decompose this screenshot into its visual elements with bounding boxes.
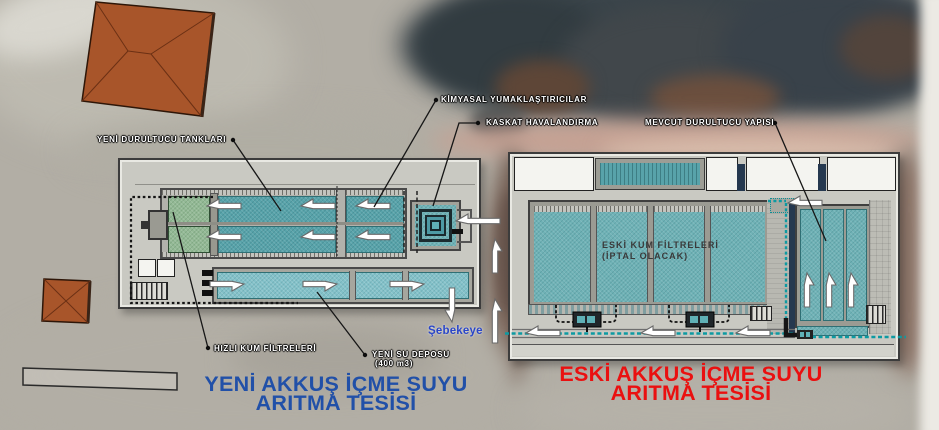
stairs [130,282,168,300]
clarifier-column [800,209,821,321]
title-old-plant: ESKİ AKKUŞ İÇME SUYU ARITMA TESİSİ [548,365,834,402]
room [746,157,820,191]
label-new-water-tank-line1: YENİ SU DEPOSU [372,350,450,359]
room-divider [737,164,745,191]
label-cascade-aeration: KASKAT HAVALANDIRMA [486,118,598,127]
new-water-storage-tank [212,267,474,304]
label-new-clarifier-tanks: YENİ DURULTUCU TANKLARI [97,135,226,144]
flocculation-tank-assembly [160,188,407,259]
inlet-bracket [457,209,472,243]
pool-label-old-sand-filters: ESKİ KUM FİLTRELERİ (İPTAL OLACAK) [602,240,719,262]
room-divider [818,164,826,191]
center-beam [164,222,403,225]
old-plant-footprint: ESKİ KUM FİLTRELERİ (İPTAL OLACAK) [508,152,900,361]
label-to-network: Şebekeye [428,325,483,337]
stairs [866,305,886,324]
existing-clarifier-columns [795,204,873,328]
room [827,157,896,191]
chemical-mixing-cell [346,196,404,223]
room [514,157,594,191]
label-chemical-flocculators: KİMYASAL YUMAKLAŞTIRICILAR [441,95,587,104]
bottom-corridor [512,344,894,356]
title-new-plant-line2: ARITMA TESİSİ [193,394,479,413]
rapid-sand-filter-cell [168,226,210,253]
stairs [750,306,772,321]
tank-divider [349,271,356,300]
label-new-water-tank: YENİ SU DEPOSU (400 m3) [372,350,450,368]
pool-label-line2: (İPTAL OLACAK) [602,251,688,261]
cascade-aerator [410,200,461,251]
pump-structure [148,210,168,240]
new-plant-footprint [118,158,481,309]
chemical-room [595,158,705,190]
label-new-water-tank-line2: (400 m3) [375,359,450,368]
flocculation-cell [218,226,336,253]
pump-stub [141,221,148,229]
clarifier-column [846,209,867,321]
site-plan-diagram: ESKİ KUM FİLTRELERİ (İPTAL OLACAK) [0,0,939,430]
clarifier-column [823,209,844,321]
yard-structure [138,259,156,277]
label-rapid-sand-filters: HIZLI KUM FİLTRELERİ [214,344,316,353]
clarifier-channel [797,326,868,336]
chemical-mixing-cell [346,226,404,253]
title-old-plant-line2: ARITMA TESİSİ [548,384,834,403]
old-sand-filter-pool: ESKİ KUM FİLTRELERİ (İPTAL OLACAK) [528,200,771,308]
room [706,157,738,191]
title-new-plant: YENİ AKKUŞ İÇME SUYU ARITMA TESİSİ [193,375,479,412]
launder-strip [162,190,405,195]
pool-label-line1: ESKİ KUM FİLTRELERİ [602,240,719,250]
label-existing-clarifier: MEVCUT DURULTUCU YAPISI [645,118,774,127]
pool-divider [590,206,597,302]
tank-divider [402,271,409,300]
flocculation-cell [218,196,336,223]
yard-structure [157,259,175,277]
pool-footing [528,304,769,315]
building-interior-line [135,184,475,185]
rapid-sand-filter-cell [168,196,210,223]
